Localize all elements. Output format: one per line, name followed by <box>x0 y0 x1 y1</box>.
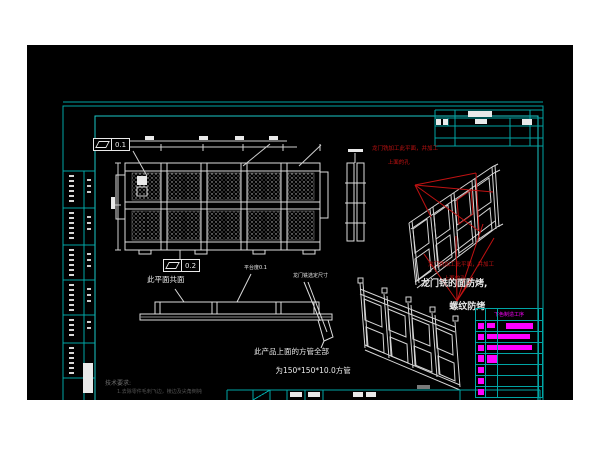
gantry-dim-note: 龙门铣选定尺寸 <box>293 273 328 279</box>
revision-strip-text <box>69 249 74 276</box>
process-entry-bar <box>478 334 484 340</box>
process-entry-bar <box>478 378 484 384</box>
process-entry-bar <box>487 334 530 339</box>
square-tube-note: 此产品上面的方管全部 为150*150*10.0方管 <box>254 347 351 375</box>
left-strip-white-cell <box>83 363 93 393</box>
revision-strip-text <box>69 347 74 374</box>
process-entry-bar <box>487 323 495 328</box>
process-entry-bar <box>487 345 532 350</box>
flatness-value: 0.1 <box>112 141 129 149</box>
revision-strip-text <box>69 319 74 339</box>
revision-strip-text <box>87 253 91 267</box>
flatness-value: 0.2 <box>182 262 199 270</box>
process-entry-bar <box>487 355 497 363</box>
process-table: 下色制造工序 <box>475 308 543 398</box>
platform-flatness-note: 平台度0.1 <box>244 265 267 271</box>
red-machining-note-top: 龙门铣加工此平面，并加工 上面的孔 <box>372 146 438 167</box>
process-entry-bar <box>478 367 484 373</box>
tech-requirements-title: 技术要求: <box>105 380 131 388</box>
revision-strip-text <box>87 321 91 333</box>
process-entry-bar <box>478 345 484 351</box>
revision-strip-text <box>69 175 74 204</box>
flatness-fcf-top: 0.1 <box>93 138 130 151</box>
revision-strip-text <box>87 179 91 193</box>
revision-strip-text <box>69 284 74 311</box>
cad-screenshot-page: 0.1 0.2 此平面共面 平台度0.1 龙门铣选定尺寸 龙门铣加工此平面，并加… <box>0 0 600 450</box>
process-entry-bar <box>478 355 484 362</box>
cad-drawing-canvas: 0.1 0.2 此平面共面 平台度0.1 龙门铣选定尺寸 龙门铣加工此平面，并加… <box>27 45 573 400</box>
coplanar-note: 此平面共面 <box>147 275 185 284</box>
process-entry-bar <box>506 323 533 329</box>
flatness-symbol-icon <box>165 262 180 269</box>
process-entry-bar <box>478 323 484 329</box>
revision-strip-text <box>69 212 74 241</box>
process-entry-bar <box>478 389 484 395</box>
revision-strip-text <box>87 216 91 230</box>
section-view <box>345 149 366 241</box>
tech-requirements-line: 1.去除零件毛刺飞边，棱边及尖角倒钝 <box>117 389 202 395</box>
revision-strip-text <box>87 288 91 302</box>
side-elevation-view <box>140 274 333 348</box>
flatness-symbol-icon <box>95 141 110 148</box>
flatness-fcf-mid: 0.2 <box>163 259 200 272</box>
